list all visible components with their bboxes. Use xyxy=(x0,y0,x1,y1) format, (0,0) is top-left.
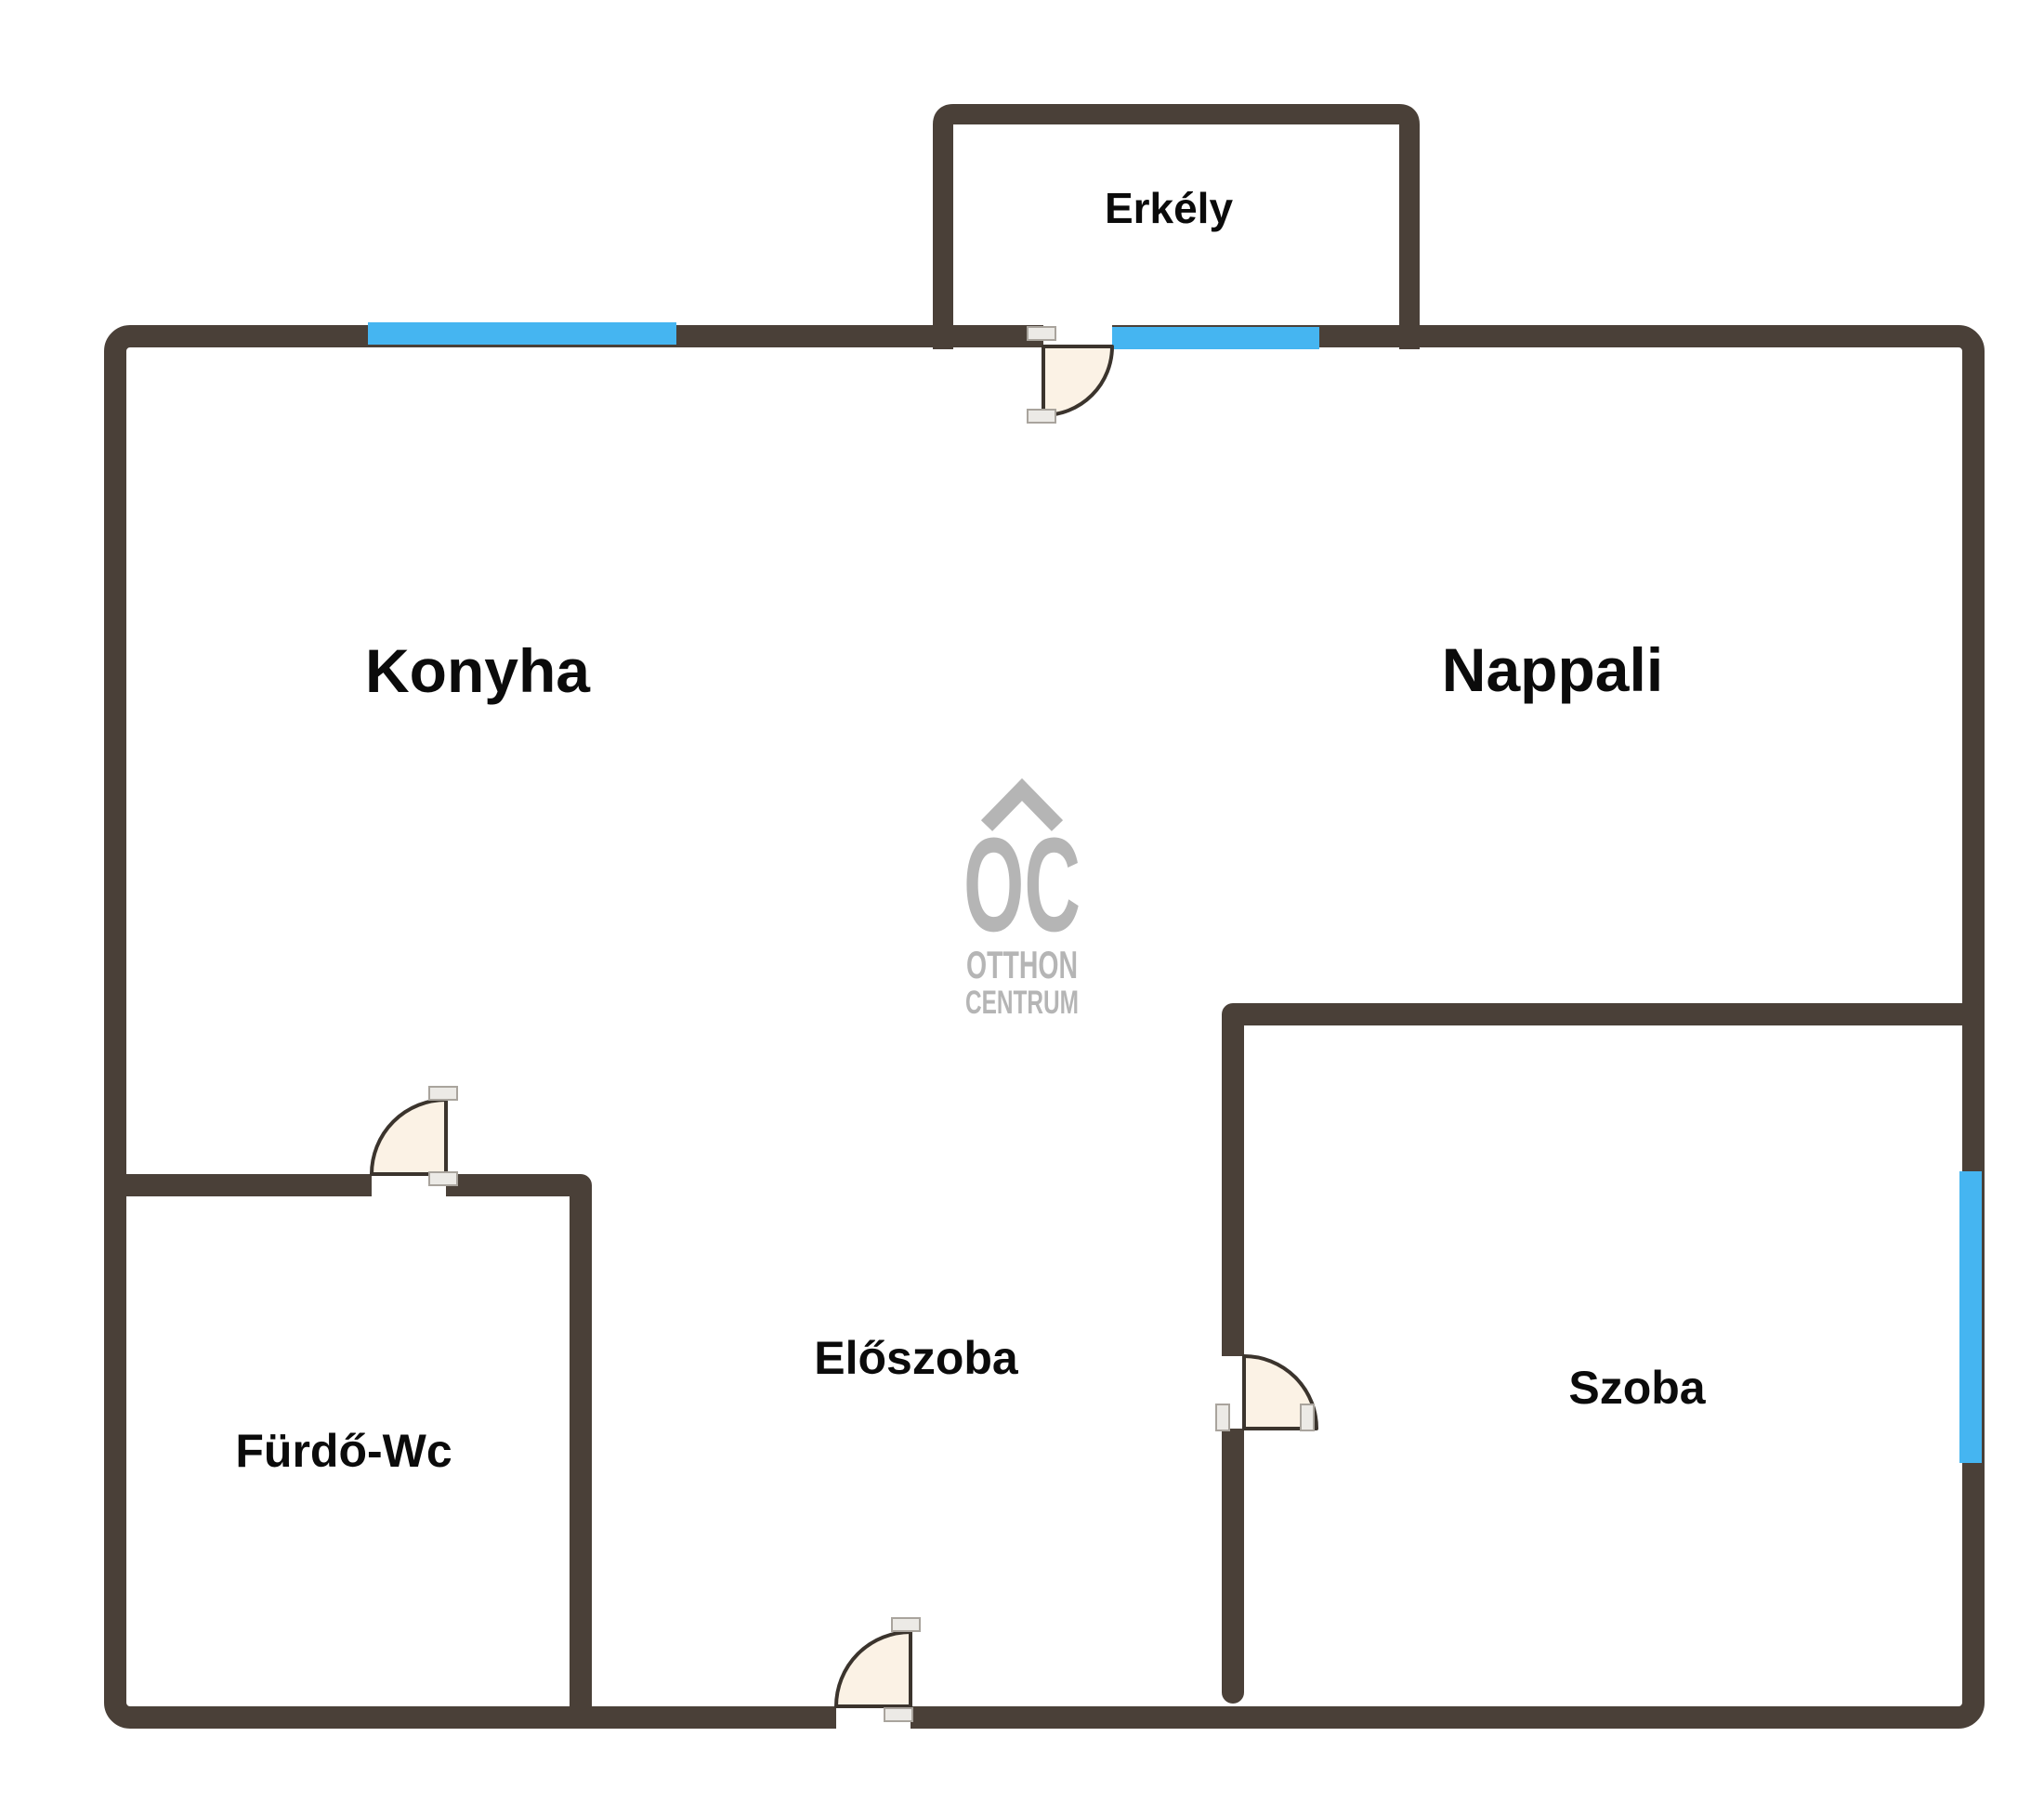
door-jamb xyxy=(429,1087,457,1100)
floor-plan-canvas: OC OTTHON CENTRUM Erkély Konyha Nappali … xyxy=(0,0,2044,1802)
livingroom-window xyxy=(1112,327,1319,349)
logo-text-line2: CENTRUM xyxy=(965,985,1079,1021)
door-jamb xyxy=(1028,410,1055,423)
entry-door xyxy=(836,1632,911,1706)
room-label-hallway: Előszoba xyxy=(814,1332,1019,1384)
door-jamb xyxy=(892,1618,920,1631)
logo-text-line1: OTTHON xyxy=(966,943,1078,986)
room-label-livingroom: Nappali xyxy=(1442,635,1663,704)
room-label-bedroom: Szoba xyxy=(1568,1362,1706,1414)
door-jamb xyxy=(884,1708,912,1721)
door-jamb xyxy=(1216,1404,1229,1430)
bathroom-door xyxy=(372,1100,446,1174)
logo-monogram: OC xyxy=(963,810,1081,960)
kitchen-window xyxy=(368,322,676,345)
door-jamb xyxy=(1028,327,1055,340)
room-label-kitchen: Konyha xyxy=(365,636,591,705)
balcony-door xyxy=(1043,346,1112,415)
otthon-centrum-logo: OC OTTHON CENTRUM xyxy=(963,790,1081,1021)
door-jamb xyxy=(429,1172,457,1185)
room-divider-wall xyxy=(1233,1014,1973,1692)
outer-wall xyxy=(115,336,1973,1717)
bedroom-window xyxy=(1959,1171,1982,1463)
room-label-bathroom: Fürdő-Wc xyxy=(235,1425,452,1477)
door-jamb xyxy=(1301,1404,1314,1430)
floor-plan: OC OTTHON CENTRUM Erkély Konyha Nappali … xyxy=(0,0,2044,1802)
room-label-balcony: Erkély xyxy=(1105,184,1234,232)
